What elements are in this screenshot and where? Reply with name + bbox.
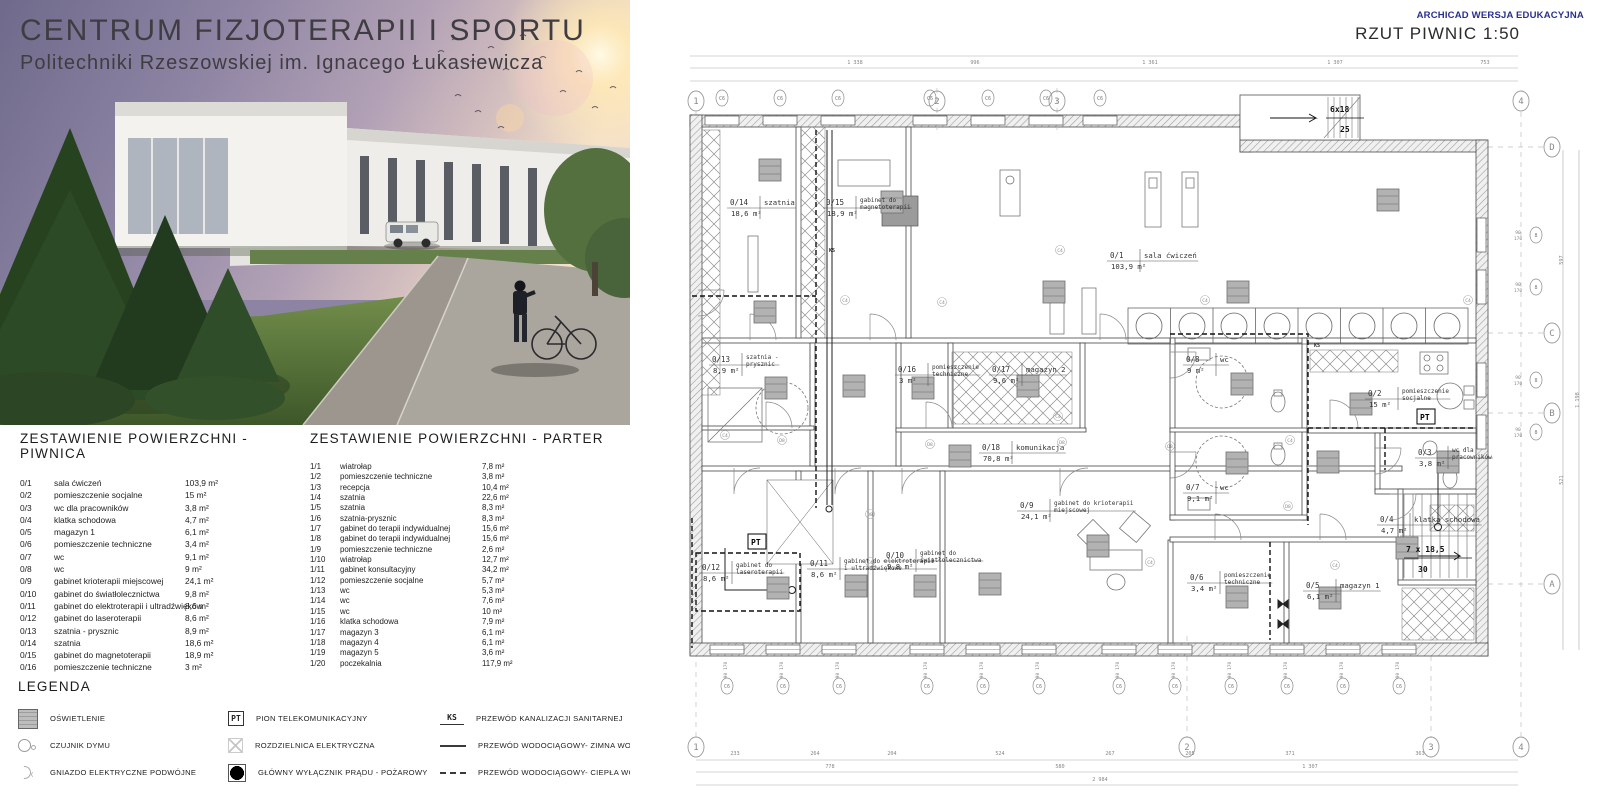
svg-text:580: 580 [1055,764,1064,770]
legend-item: GNIAZDO ELEKTRYCZNE PODWÓJNE [18,759,188,786]
svg-text:0/14: 0/14 [730,198,749,207]
table-row: 0/4 klatka schodowa 4,7 m² [20,514,300,526]
svg-text:4: 4 [1518,97,1523,107]
table-row: 0/12 gabinet do laseroterapii 8,6 m² [20,612,300,624]
svg-text:233: 233 [730,751,739,757]
svg-text:C6: C6 [780,684,786,690]
svg-text:8: 8 [1534,430,1537,436]
legend-label: PRZEWÓD WODOCIĄGOWY- ZIMNA WODA [478,741,642,750]
svg-text:C6: C6 [724,684,730,690]
room-area: 6,1 m² [482,628,552,638]
room-area: 8,9 m² [185,625,255,637]
svg-text:8,6 m²: 8,6 m² [811,570,837,579]
svg-text:szatnia: szatnia [764,198,795,207]
room-id: 0/1 [20,477,54,489]
legend-column-3: KS PRZEWÓD KANALIZACJI SANITARNEJ PRZEWÓ… [440,705,630,786]
table-parter-rows: 1/1 wiatrołap 7,8 m² 1/2 pomieszczenie t… [310,462,615,669]
svg-text:C4: C4 [722,433,728,439]
svg-text:30: 30 [1418,565,1428,574]
legend-item: CZUJNIK DYMU [18,732,188,759]
svg-text:0/9: 0/9 [1020,501,1034,510]
room-name: pomieszczenie techniczne [54,538,185,550]
room-name: wc [54,551,185,563]
svg-text:C6: C6 [924,684,930,690]
table-row: 0/8 wc 9 m² [20,563,300,575]
room-id: 1/19 [310,648,340,658]
svg-text:3 m²: 3 m² [899,376,917,385]
room-name: wiatrołap [340,462,482,472]
room-area: 8,3 m² [482,503,552,513]
svg-text:0/12: 0/12 [702,563,720,572]
room-id: 0/9 [20,575,54,587]
svg-text:D8: D8 [927,442,933,448]
room-area: 3,8 m² [482,472,552,482]
svg-text:0/5: 0/5 [1306,581,1320,590]
room-area: 3,8 m² [185,502,255,514]
table-row: 1/2 pomieszczenie techniczne 3,8 m² [310,472,615,482]
svg-text:magazyn 1: magazyn 1 [1340,581,1380,590]
svg-text:C6: C6 [980,684,986,690]
svg-text:C6: C6 [927,96,933,102]
svg-text:0/10: 0/10 [886,551,905,560]
svg-text:1 307: 1 307 [1302,764,1318,770]
svg-text:B: B [1549,409,1554,419]
room-id: 1/16 [310,617,340,627]
room-id: 0/8 [20,563,54,575]
svg-text:4: 4 [1518,743,1523,753]
svg-text:C6: C6 [985,96,991,102]
room-id: 0/6 [20,538,54,550]
room-id: 1/18 [310,638,340,648]
svg-text:0/15: 0/15 [826,198,844,207]
svg-text:9 m²: 9 m² [1187,366,1205,375]
svg-text:6,1 m²: 6,1 m² [1307,592,1333,601]
room-area: 6,1 m² [185,526,255,538]
svg-text:3: 3 [1054,97,1059,107]
room-id: 1/11 [310,565,340,575]
room-area: 8,6 m² [185,600,255,612]
table-row: 1/5 szatnia 8,3 m² [310,503,615,513]
room-name: gabinet konsultacyjny [340,565,482,575]
svg-text:0/18: 0/18 [982,443,1001,452]
room-id: 1/13 [310,586,340,596]
svg-text:8: 8 [1534,233,1537,239]
table-row: 1/18 magazyn 4 6,1 m² [310,638,615,648]
svg-text:C6: C6 [1284,684,1290,690]
room-name: pomieszczenie techniczne [340,545,482,555]
svg-text:KS: KS [829,248,835,254]
room-name: magazyn 5 [340,648,482,658]
project-title: CENTRUM FIZJOTERAPII I SPORTU Politechni… [20,14,586,75]
legend-label: GŁÓWNY WYŁĄCZNIK PRĄDU - POŻAROWY [258,768,428,777]
svg-text:C: C [1549,329,1554,339]
svg-text:205: 205 [1185,751,1194,757]
room-name: wc [54,563,185,575]
svg-text:90 170: 90 170 [723,661,729,678]
svg-text:C6: C6 [836,684,842,690]
legend-item: PRZEWÓD WODOCIĄGOWY- CIEPŁA WODA [440,759,630,786]
room-label: 0/14szatnia18,6 m² [727,196,796,219]
svg-text:1 307: 1 307 [1327,60,1343,66]
room-name: szatnia [340,503,482,513]
legend-label: CZUJNIK DYMU [50,741,110,750]
svg-text:klatka schodowa: klatka schodowa [1414,515,1480,524]
room-id: 1/6 [310,514,340,524]
table-row: 1/10 wiatrołap 12,7 m² [310,555,615,565]
room-name: sala ćwiczeń [54,477,185,489]
svg-text:9,6 m²: 9,6 m² [993,376,1019,385]
room-id: 0/5 [20,526,54,538]
svg-text:C4: C4 [1055,414,1061,420]
svg-text:wc: wc [1220,483,1229,492]
svg-text:2 984: 2 984 [1092,777,1108,783]
table-row: 1/8 gabinet do terapii indywidualnej 15,… [310,534,615,544]
svg-text:90 170: 90 170 [1115,661,1121,678]
svg-text:szatnia -prysznic: szatnia -prysznic [746,354,779,368]
legend-column-2: PT PION TELEKOMUNIKACYJNY ROZDZIELNICA E… [228,705,408,786]
svg-text:7 x 18,5: 7 x 18,5 [1406,545,1445,554]
room-name: magazyn 4 [340,638,482,648]
svg-text:90 170: 90 170 [923,661,929,678]
svg-text:0/3: 0/3 [1418,448,1432,457]
table-row: 0/1 sala ćwiczeń 103,9 m² [20,477,300,489]
svg-text:371: 371 [1285,751,1294,757]
svg-text:204: 204 [887,751,896,757]
svg-text:C4: C4 [1287,438,1293,444]
table-row: 0/3 wc dla pracowników 3,8 m² [20,502,300,514]
room-name: wiatrołap [340,555,482,565]
room-id: 0/2 [20,489,54,501]
room-label: 0/5magazyn 16,1 m² [1303,579,1381,602]
svg-text:C4: C4 [867,560,873,566]
room-area: 18,9 m² [185,649,255,661]
svg-text:C6: C6 [1043,96,1049,102]
room-area: 8,6 m² [185,612,255,624]
table-row: 0/14 szatnia 18,6 m² [20,637,300,649]
svg-text:8: 8 [1534,378,1537,384]
legend-item: GŁÓWNY WYŁĄCZNIK PRĄDU - POŻAROWY [228,759,408,786]
svg-text:753: 753 [1480,60,1489,66]
svg-text:24,1 m²: 24,1 m² [1021,512,1052,521]
svg-text:90 170: 90 170 [979,661,985,678]
svg-text:C4: C4 [1057,248,1063,254]
room-area: 5,7 m² [482,576,552,586]
room-name: wc dla pracowników [54,502,185,514]
legend-label: GNIAZDO ELEKTRYCZNE PODWÓJNE [50,768,196,777]
legend-column-1: OŚWIETLENIE CZUJNIK DYMU GNIAZDO ELEKTRY… [18,705,188,786]
svg-text:D: D [1549,143,1554,153]
svg-text:15 m²: 15 m² [1369,400,1391,409]
table-row: 1/7 gabinet do terapii indywidualnej 15,… [310,524,615,534]
svg-text:90: 90 [1515,282,1521,288]
project-title-line2: Politechniki Rzeszowskiej im. Ignacego Ł… [20,52,586,75]
svg-text:0/7: 0/7 [1186,483,1200,492]
legend-symbol-icon: KS [440,713,464,725]
svg-text:170: 170 [1514,433,1523,439]
floor-plan-panel: 0/14szatnia18,6 m²0/15gabinet domagnetot… [630,0,1600,798]
room-id: 1/2 [310,472,340,482]
legend-label: ROZDZIELNICA ELEKTRYCZNA [255,741,375,750]
svg-text:C6: C6 [1036,684,1042,690]
legend-symbol-icon [18,766,31,779]
svg-text:90 170: 90 170 [779,661,785,678]
table-row: 0/6 pomieszczenie techniczne 3,4 m² [20,538,300,550]
svg-text:pomieszczeniesocjalne: pomieszczeniesocjalne [1402,388,1449,402]
legend-symbol-icon [18,709,38,729]
room-area: 7,8 m² [482,462,552,472]
svg-text:0/2: 0/2 [1368,389,1382,398]
svg-text:3,8 m²: 3,8 m² [1419,459,1445,468]
room-id: 0/4 [20,514,54,526]
legend-symbol-icon: PT [228,711,244,726]
room-id: 0/3 [20,502,54,514]
svg-text:1: 1 [693,97,698,107]
svg-text:C6: C6 [1228,684,1234,690]
room-area: 10 m² [482,607,552,617]
room-name: pomieszczenie techniczne [54,661,185,673]
svg-text:PT: PT [1420,413,1430,422]
room-area: 6,1 m² [482,638,552,648]
table-row: 1/13 wc 5,3 m² [310,586,615,596]
room-name: magazyn 1 [54,526,185,538]
room-area: 8,3 m² [482,514,552,524]
legend-symbol-icon [440,772,466,774]
svg-text:18,6 m²: 18,6 m² [731,209,762,218]
room-area: 9,1 m² [185,551,255,563]
room-name: poczekalnia [340,659,482,669]
svg-text:8,6 m²: 8,6 m² [703,574,729,583]
room-id: 0/12 [20,612,54,624]
table-piwnica-rows: 0/1 sala ćwiczeń 103,9 m² 0/2 pomieszcze… [20,477,300,686]
table-row: 0/5 magazyn 1 6,1 m² [20,526,300,538]
svg-text:0/11: 0/11 [810,559,828,568]
table-row: 1/11 gabinet konsultacyjny 34,2 m² [310,565,615,575]
room-area: 15,6 m² [482,524,552,534]
room-area: 117,9 m² [482,659,552,669]
room-label: 0/1sala ćwiczeń103,9 m² [1107,249,1198,272]
svg-text:778: 778 [825,764,834,770]
svg-text:D8: D8 [779,438,785,444]
legend-item: KS PRZEWÓD KANALIZACJI SANITARNEJ [440,705,630,732]
svg-text:1: 1 [693,743,698,753]
room-id: 1/9 [310,545,340,555]
legend-symbol-icon [228,764,246,782]
svg-text:8,9 m²: 8,9 m² [713,366,739,375]
svg-text:90 170: 90 170 [1035,661,1041,678]
room-id: 0/11 [20,600,54,612]
svg-text:gabinet do krioterapiimiejscow: gabinet do krioterapiimiejscowej [1054,500,1134,514]
table-piwnica: ZESTAWIENIE POWIERZCHNI - PIWNICA 0/1 sa… [20,431,300,686]
svg-text:170: 170 [1514,236,1523,242]
table-row: 1/6 szatnia-prysznic 8,3 m² [310,514,615,524]
svg-text:267: 267 [1105,751,1114,757]
svg-text:25: 25 [1340,125,1350,134]
room-name: pomieszczenie socjalne [340,576,482,586]
room-name: klatka schodowa [340,617,482,627]
svg-text:PT: PT [751,538,761,547]
svg-text:wc: wc [1220,355,1229,364]
table-row: 1/4 szatnia 22,6 m² [310,493,615,503]
svg-text:C4: C4 [842,298,848,304]
svg-text:90: 90 [1515,427,1521,433]
room-id: 1/8 [310,534,340,544]
svg-text:1 198: 1 198 [1575,392,1581,408]
svg-text:90 170: 90 170 [1339,661,1345,678]
room-name: gabinet do laseroterapii [54,612,185,624]
room-name: szatnia [340,493,482,503]
room-area: 9,8 m² [185,588,255,600]
room-name: klatka schodowa [54,514,185,526]
table-row: 1/17 magazyn 3 6,1 m² [310,628,615,638]
svg-text:103,9 m²: 103,9 m² [1111,262,1146,271]
floor-plan-drawing: 0/14szatnia18,6 m²0/15gabinet domagnetot… [630,0,1600,798]
room-area: 22,6 m² [482,493,552,503]
svg-text:C6: C6 [777,96,783,102]
svg-text:90 170: 90 170 [1283,661,1289,678]
table-row: 1/12 pomieszczenie socjalne 5,7 m² [310,576,615,586]
legend: LEGENDA OŚWIETLENIE CZUJNIK DYMU GNIAZDO… [0,675,630,798]
room-area: 9 m² [185,563,255,575]
room-label: 0/7wc9,1 m² [1183,481,1229,504]
svg-text:D8: D8 [1059,440,1065,446]
room-area: 7,6 m² [482,596,552,606]
room-name: gabinet do terapii indywidualnej [340,534,482,544]
room-area: 18,6 m² [185,637,255,649]
svg-text:3,4 m²: 3,4 m² [1191,584,1217,593]
table-row: 0/7 wc 9,1 m² [20,551,300,563]
room-name: pomieszczenie socjalne [54,489,185,501]
svg-text:0/4: 0/4 [1380,515,1394,524]
svg-text:C6: C6 [1097,96,1103,102]
room-area: 3 m² [185,661,255,673]
archicad-watermark: ARCHICAD WERSJA EDUKACYJNA [1417,10,1584,21]
svg-text:sala ćwiczeń: sala ćwiczeń [1144,251,1197,260]
room-name: szatnia [54,637,185,649]
room-id: 1/4 [310,493,340,503]
room-name: szatnia-prysznic [340,514,482,524]
svg-text:524: 524 [995,751,1004,757]
room-name: wc [340,607,482,617]
table-parter-title: ZESTAWIENIE POWIERZCHNI - PARTER [310,431,615,446]
svg-text:90 170: 90 170 [1395,661,1401,678]
svg-text:170: 170 [1514,381,1523,387]
room-id: 1/3 [310,483,340,493]
room-area: 3,4 m² [185,538,255,550]
svg-text:90: 90 [1515,230,1521,236]
svg-text:D8: D8 [867,512,873,518]
svg-text:90 170: 90 170 [1171,661,1177,678]
table-row: 0/16 pomieszczenie techniczne 3 m² [20,661,300,673]
legend-label: OŚWIETLENIE [50,714,105,723]
svg-text:komunikacja: komunikacja [1016,443,1064,452]
table-piwnica-title: ZESTAWIENIE POWIERZCHNI - PIWNICA [20,431,300,461]
svg-text:C6: C6 [719,96,725,102]
svg-text:0/13: 0/13 [712,355,730,364]
table-row: 1/20 poczekalnia 117,9 m² [310,659,615,669]
legend-label: PRZEWÓD WODOCIĄGOWY- CIEPŁA WODA [478,768,646,777]
room-name: recepcja [340,483,482,493]
table-row: 0/2 pomieszczenie socjalne 15 m² [20,489,300,501]
svg-text:C6: C6 [835,96,841,102]
svg-text:C4: C4 [939,300,945,306]
room-label: 0/18komunikacja70,8 m² [979,441,1066,464]
room-name: gabinet do terapii indywidualnej [340,524,482,534]
svg-text:0/17: 0/17 [992,365,1010,374]
plan-title: RZUT PIWNIC 1:50 [1355,24,1520,44]
room-id: 0/16 [20,661,54,673]
room-name: szatnia - prysznic [54,625,185,637]
room-name: gabinet krioterapii miejscowej [54,575,185,587]
svg-text:4,7 m²: 4,7 m² [1381,526,1407,535]
room-name: gabinet do światłolecznictwa [54,588,185,600]
legend-symbol-icon [228,738,243,753]
room-name: gabinet do elektroterapii i ultradźwiękó… [54,600,185,612]
room-id: 1/20 [310,659,340,669]
legend-item: PT PION TELEKOMUNIKACYJNY [228,705,408,732]
room-id: 1/12 [310,576,340,586]
svg-text:C6: C6 [1172,684,1178,690]
svg-text:90 170: 90 170 [1227,661,1233,678]
svg-text:90 170: 90 170 [835,661,841,678]
svg-text:3: 3 [1428,743,1433,753]
svg-text:8: 8 [1534,285,1537,291]
room-area: 103,9 m² [185,477,255,489]
svg-text:C4: C4 [1465,298,1471,304]
room-id: 0/14 [20,637,54,649]
room-area: 4,7 m² [185,514,255,526]
table-row: 0/11 gabinet do elektroterapii i ultradź… [20,600,300,612]
table-row: 1/1 wiatrołap 7,8 m² [310,462,615,472]
svg-text:1 338: 1 338 [847,60,863,66]
project-rendering: CENTRUM FIZJOTERAPII I SPORTU Politechni… [0,0,630,425]
room-id: 0/7 [20,551,54,563]
legend-item: OŚWIETLENIE [18,705,188,732]
svg-text:pomieszczenietechniczne: pomieszczenietechniczne [1224,572,1271,586]
svg-text:18,9 m²: 18,9 m² [827,209,858,218]
room-area: 15,6 m² [482,534,552,544]
svg-text:597: 597 [1559,255,1565,264]
svg-text:1 361: 1 361 [1142,60,1158,66]
room-area: 2,6 m² [482,545,552,555]
svg-text:264: 264 [810,751,819,757]
svg-text:KS: KS [1314,343,1320,349]
room-id: 1/5 [310,503,340,513]
legend-item: PRZEWÓD WODOCIĄGOWY- ZIMNA WODA [440,732,630,759]
svg-text:0/1: 0/1 [1110,251,1124,260]
svg-text:6x18: 6x18 [1330,105,1349,114]
room-name: gabinet do magnetoterapii [54,649,185,661]
svg-text:363: 363 [1415,751,1424,757]
room-id: 1/1 [310,462,340,472]
room-id: 1/14 [310,596,340,606]
room-id: 1/7 [310,524,340,534]
table-row: 1/3 recepcja 10,4 m² [310,483,615,493]
room-name: wc [340,596,482,606]
svg-text:C6: C6 [1340,684,1346,690]
svg-text:magazyn 2: magazyn 2 [1026,365,1066,374]
room-id: 0/10 [20,588,54,600]
legend-label: PRZEWÓD KANALIZACJI SANITARNEJ [476,714,623,723]
room-area: 7,9 m² [482,617,552,627]
dimension-texts: 1 3389961 3611 3077532332642045242672053… [730,60,1581,783]
svg-text:0/8: 0/8 [1186,355,1200,364]
room-area: 3,6 m² [482,648,552,658]
svg-text:0/16: 0/16 [898,365,917,374]
legend-title: LEGENDA [18,679,91,694]
room-id: 1/10 [310,555,340,565]
area-tables: ZESTAWIENIE POWIERZCHNI - PIWNICA 0/1 sa… [0,425,630,675]
room-id: 0/15 [20,649,54,661]
